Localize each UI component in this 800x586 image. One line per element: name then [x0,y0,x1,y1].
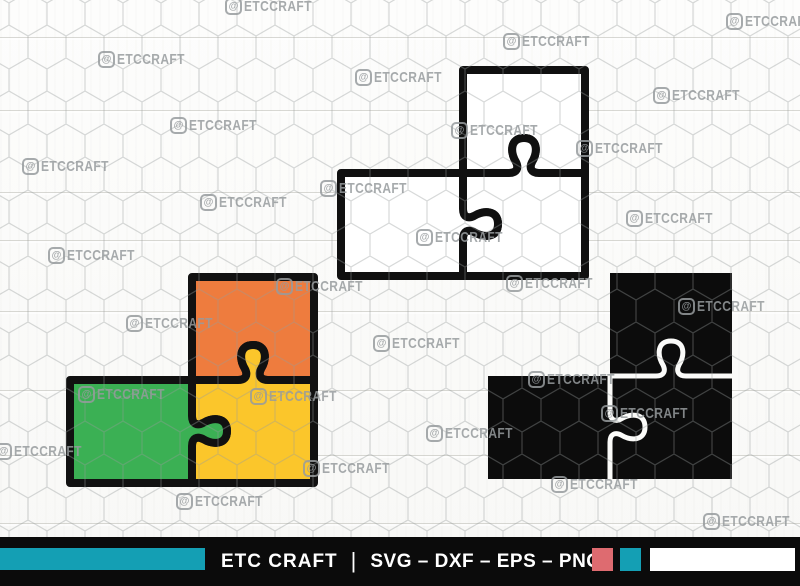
brand-name: ETC CRAFT [221,551,338,573]
swatch-red [592,548,613,571]
footer-text: ETC CRAFT | SVG – DXF – EPS – PNG [221,537,602,586]
brand-stripe [0,548,205,570]
wood-seam [0,523,800,524]
swatch-teal [620,548,641,571]
footer-separator: | [351,548,358,574]
puzzle-outline-graphic [337,66,589,282]
preview-canvas: @ ETCCRAFT @ ETCCRAFT @ ETCCRAFT @ ETCCR… [0,0,800,586]
puzzle-colored-graphic [66,273,318,489]
puzzle-silhouette-graphic [484,269,736,485]
footer-bar: ETC CRAFT | SVG – DXF – EPS – PNG [0,537,800,586]
file-formats-list: SVG – DXF – EPS – PNG [370,551,601,573]
swatch-white [650,548,795,571]
wood-seam [0,37,800,38]
